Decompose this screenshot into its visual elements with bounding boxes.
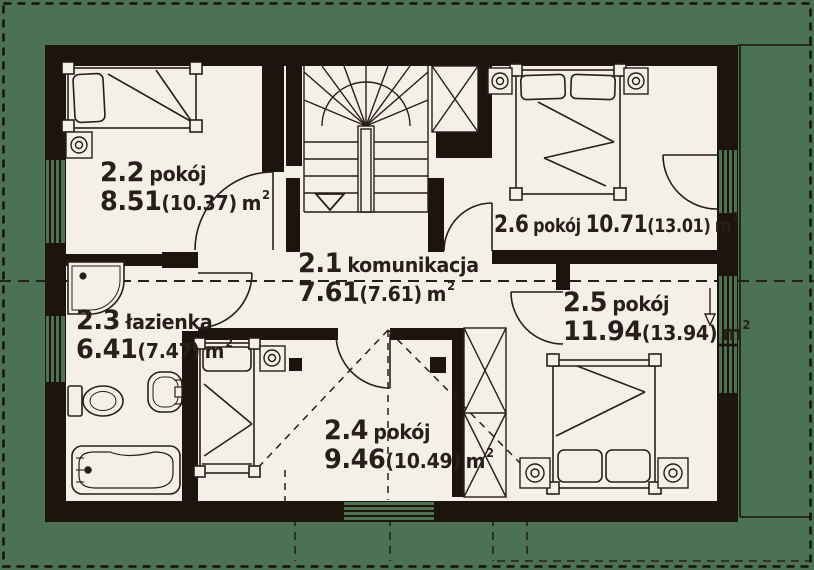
nightstand-lamp-room24 [260,346,285,371]
window-right-room26 [719,150,737,213]
window-left-bathroom [46,316,65,382]
nightstand-lamp-room26-left [488,68,512,94]
toilet [68,386,123,416]
chimney-flue [289,358,302,371]
window-left-room22 [46,160,65,243]
room-label-2-1: 2.1 komunikacja 7.61(7.61)m2 [298,249,479,307]
nightstand-lamp-room22 [66,132,92,158]
floor-plan-canvas: 2.2 pokój 8.51(10.37)m2 2.1 komunikacja … [0,0,814,570]
room-label-2-6: 2.6 pokój 10.71(13.01)m2 [494,212,738,238]
nightstand-lamp-room25-left [520,458,550,488]
window-bottom-room24 [344,502,434,520]
nightstand-lamp-room25-right [658,458,688,488]
room-label-2-5: 2.5 pokój 11.94(13.94)m2 [563,288,749,346]
bathtub [72,446,180,494]
washbasin [148,372,182,412]
room-label-2-2: 2.2 pokój 8.51(10.37)m2 [100,158,269,216]
nightstand-lamp-room26-right [624,68,648,94]
room-label-2-4: 2.4 pokój 9.46(10.49)m2 [324,416,493,474]
chimney-flue-2 [430,357,446,373]
room-label-2-3: 2.3 łazienka 6.41(7.47)m2 [76,306,232,364]
